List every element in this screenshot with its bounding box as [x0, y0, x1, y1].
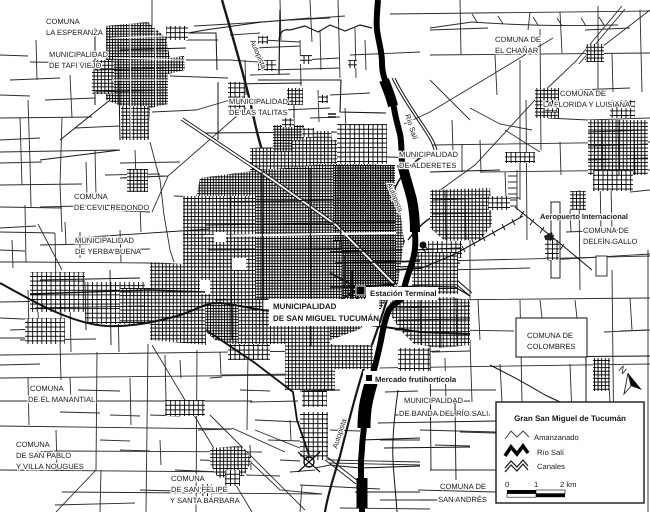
svg-text:LA ESPERANZA: LA ESPERANZA: [46, 28, 104, 37]
svg-text:COMUNA DE: COMUNA DE: [440, 482, 486, 491]
svg-text:DE ALDERETES: DE ALDERETES: [399, 161, 456, 170]
svg-text:EL CHAÑAR: EL CHAÑAR: [495, 46, 539, 55]
svg-text:DE SAN FELIPE: DE SAN FELIPE: [171, 485, 228, 494]
svg-text:Aeropuerto Internacional: Aeropuerto Internacional: [540, 212, 628, 221]
svg-text:2 km: 2 km: [560, 480, 576, 489]
svg-text:MUNICIPALIDAD: MUNICIPALIDAD: [75, 236, 134, 245]
svg-text:1: 1: [534, 480, 538, 489]
svg-text:COMUNA: COMUNA: [74, 192, 109, 201]
svg-text:Mercado frutihortícola: Mercado frutihortícola: [375, 375, 457, 384]
svg-text:COMUNA: COMUNA: [30, 384, 65, 393]
svg-text:COMUNA DE: COMUNA DE: [527, 331, 573, 340]
svg-text:Río Salí: Río Salí: [537, 448, 565, 457]
svg-text:COMUNA DE: COMUNA DE: [583, 226, 629, 235]
svg-text:DE TAFI VIEJO: DE TAFI VIEJO: [49, 61, 102, 70]
svg-text:DE CEVIL REDONDO: DE CEVIL REDONDO: [74, 203, 149, 212]
svg-text:0: 0: [505, 480, 509, 489]
svg-text:COMUNA: COMUNA: [171, 474, 206, 483]
svg-text:Y SANTA BÁRBARA: Y SANTA BÁRBARA: [170, 496, 241, 505]
svg-text:MUNICIPALIDAD: MUNICIPALIDAD: [229, 97, 288, 106]
svg-text:Canales: Canales: [537, 462, 565, 471]
svg-text:MUNICIPALIDAD: MUNICIPALIDAD: [273, 302, 337, 311]
svg-text:Amanzanado: Amanzanado: [534, 433, 579, 442]
svg-text:SAN ANDRÉS: SAN ANDRÉS: [438, 495, 487, 504]
svg-text:Y VILLA NOUGUES: Y VILLA NOUGUES: [16, 462, 84, 471]
svg-text:COMUNA: COMUNA: [16, 440, 51, 449]
svg-text:MUNICIPALIDAD: MUNICIPALIDAD: [49, 50, 108, 59]
svg-text:Estación Terminal: Estación Terminal: [370, 289, 437, 298]
svg-text:COMUNA DE: COMUNA DE: [560, 89, 606, 98]
svg-text:DE EL MANANTIAL: DE EL MANANTIAL: [28, 395, 95, 404]
svg-text:COMUNA: COMUNA: [46, 17, 81, 26]
svg-text:COLOMBRES: COLOMBRES: [527, 342, 576, 351]
svg-text:DE SAN PABLO: DE SAN PABLO: [16, 451, 71, 460]
svg-text:DE LAS TALITAS: DE LAS TALITAS: [229, 108, 288, 117]
svg-text:COMUNA DE: COMUNA DE: [495, 35, 541, 44]
svg-text:Gran San Miguel de Tucumán: Gran San Miguel de Tucumán: [514, 414, 626, 423]
svg-text:MUNICIPALIDAD: MUNICIPALIDAD: [399, 150, 458, 159]
svg-text:DELFÍN GALLO: DELFÍN GALLO: [583, 237, 638, 246]
svg-text:DE SAN MIGUEL TUCUMÁN: DE SAN MIGUEL TUCUMÁN: [273, 313, 379, 323]
svg-text:DE BANDA DEL RÍO SALI: DE BANDA DEL RÍO SALI: [399, 409, 488, 418]
svg-text:MUNICIPALIDAD: MUNICIPALIDAD: [404, 396, 463, 405]
svg-text:DE YERBA BUENA: DE YERBA BUENA: [75, 247, 142, 256]
svg-text:LA FLORIDA Y LUISIANA: LA FLORIDA Y LUISIANA: [543, 100, 631, 109]
